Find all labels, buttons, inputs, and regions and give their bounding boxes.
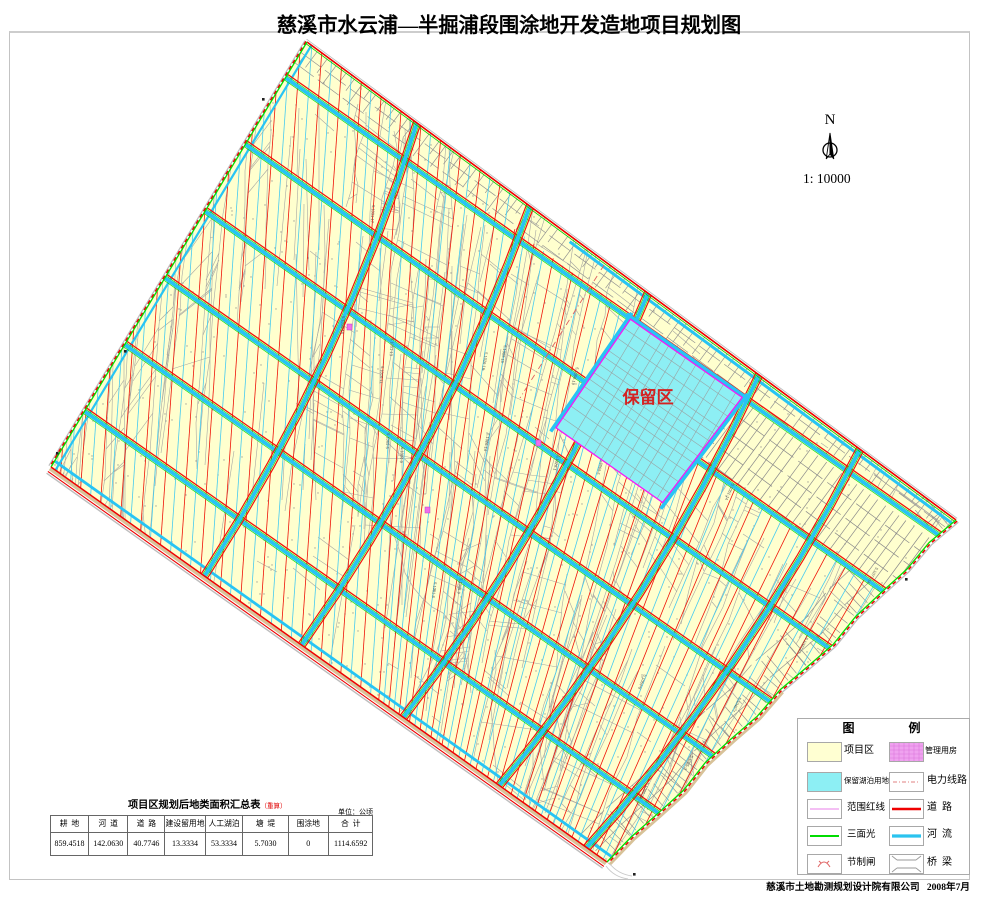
- svg-text:5.1026-18: 5.1026-18: [770, 764, 784, 783]
- svg-text:保留区: 保留区: [622, 387, 674, 407]
- svg-text:5.1056-14: 5.1056-14: [693, 783, 706, 802]
- svg-text:5.1035-9: 5.1035-9: [683, 843, 695, 860]
